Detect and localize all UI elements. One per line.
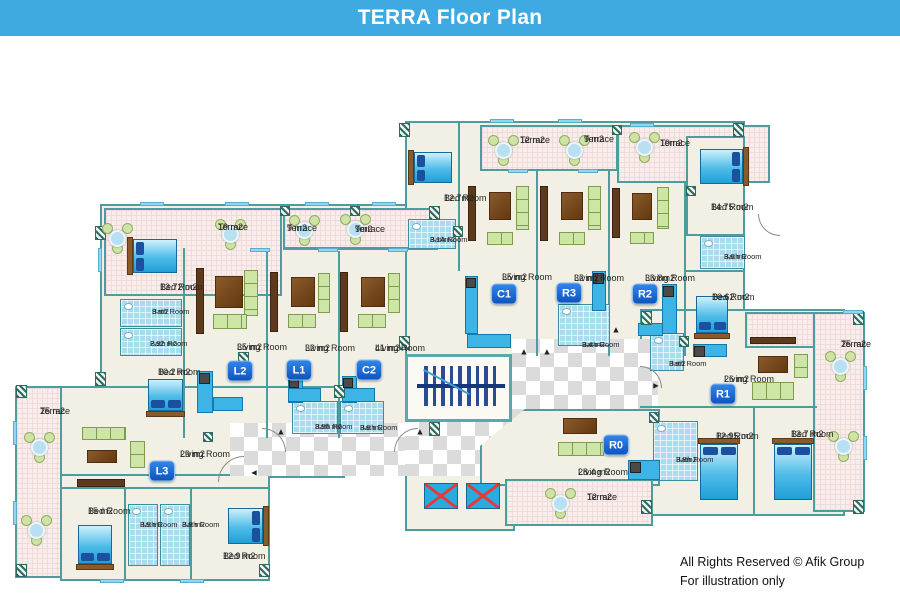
coffee-table-icon: [561, 192, 583, 220]
tv-unit-icon: [270, 272, 278, 332]
window-mark: [13, 501, 17, 525]
room-area: 3.5 m2: [140, 521, 163, 529]
table-top-icon: [495, 142, 512, 159]
entry-arrow-icon: ▲: [416, 428, 425, 437]
pillow-icon: [81, 553, 94, 561]
coffee-table-icon: [563, 418, 597, 434]
pillow-icon: [721, 447, 736, 455]
bed-icon: [78, 525, 112, 564]
room-area: 3.8m2: [676, 456, 697, 464]
loveseat-icon: [130, 441, 145, 468]
sofa-icon: [244, 270, 258, 316]
room-area: 32 m2: [305, 343, 330, 353]
window-mark: [225, 202, 249, 206]
apartment-badge-l1: L1: [286, 360, 312, 381]
room-area: 3.14m2: [430, 236, 455, 244]
entry-arrow-icon: ▲: [543, 348, 552, 357]
room-area: 29 m2: [180, 449, 205, 459]
wall-hatch: [649, 412, 659, 423]
terrace-table-icon: [20, 514, 54, 548]
pillow-icon: [703, 447, 718, 455]
toilet-icon: [654, 337, 663, 344]
kitchen-counter: [213, 397, 243, 411]
apartment-badge-c2: C2: [356, 360, 382, 381]
interior-wall: [124, 489, 126, 581]
loveseat-icon: [559, 232, 585, 245]
pillow-icon: [417, 170, 425, 182]
bathroom-tile-area: [128, 504, 158, 566]
entry-arrow-icon: ▲: [612, 326, 621, 335]
kitchen-counter: [342, 388, 375, 402]
kitchen-counter: [467, 334, 511, 348]
page-title: TERRA Floor Plan: [358, 6, 543, 30]
pillow-icon: [168, 400, 182, 408]
bed-icon: [148, 379, 183, 411]
bed-icon: [414, 152, 452, 183]
room-area: 12.9 m2: [223, 551, 256, 561]
toilet-icon: [657, 425, 666, 432]
floor-plan: ▲▲▲▲▲◄►Terrace19 m2Terrace9 m2Terrace9m2…: [0, 36, 900, 600]
room-area: 12 m2: [587, 492, 612, 502]
room-area: 33.8m2: [645, 273, 675, 283]
window-mark: [180, 579, 204, 583]
stove-icon: [694, 346, 705, 357]
loveseat-icon: [358, 314, 386, 328]
staircase: [405, 354, 512, 422]
toilet-icon: [124, 332, 133, 339]
headboard-icon: [76, 564, 114, 570]
kitchen-counter: [288, 388, 321, 402]
toilet-icon: [344, 405, 353, 412]
window-mark: [508, 169, 528, 173]
entry-arrow-icon: ◄: [250, 469, 259, 478]
pillow-icon: [795, 447, 810, 455]
pillow-icon: [417, 155, 425, 167]
room-area: 25 m2: [40, 406, 65, 416]
coffee-table-icon: [361, 277, 385, 307]
room-area: 19m2: [660, 138, 683, 148]
table-top-icon: [109, 230, 126, 247]
table-top-icon: [835, 438, 852, 455]
pillow-icon: [252, 528, 260, 542]
bed-icon: [228, 508, 263, 544]
coffee-table-icon: [291, 277, 315, 307]
coffee-table-icon: [758, 356, 788, 373]
room-area: 41 m2: [375, 343, 400, 353]
pillow-icon: [252, 511, 260, 525]
room-area: 19 m2: [218, 222, 243, 232]
table-top-icon: [552, 495, 569, 512]
room-area: 3.6 m2: [360, 424, 383, 432]
sofa-icon: [752, 382, 794, 400]
bed-icon: [774, 444, 812, 500]
apartment-badge-l3: L3: [149, 461, 175, 482]
window-mark: [490, 119, 514, 123]
pillow-icon: [732, 152, 740, 166]
loveseat-icon: [630, 232, 654, 244]
window-mark: [372, 202, 396, 206]
table-top-icon: [28, 522, 45, 539]
toilet-icon: [704, 240, 713, 247]
disclaimer-line: For illustration only: [680, 572, 864, 591]
wall-hatch: [679, 336, 689, 347]
window-mark: [843, 310, 863, 314]
wall-hatch: [16, 564, 27, 577]
wall-hatch: [95, 372, 106, 386]
headboard-icon: [694, 333, 730, 339]
pillow-icon: [699, 322, 711, 330]
pillow-icon: [732, 169, 740, 183]
stove-icon: [630, 462, 641, 473]
terrace-table-icon: [23, 431, 57, 465]
room-area: 14.75 m2: [711, 202, 749, 212]
apartment-badge-l2: L2: [227, 361, 253, 382]
room-area: 9 m2: [584, 134, 604, 144]
window-mark: [558, 119, 582, 123]
table-top-icon: [566, 142, 583, 159]
bathroom-tile-area: [160, 504, 190, 566]
terrace-table-icon: [628, 131, 662, 165]
sofa-icon: [558, 442, 604, 456]
copyright-line: All Rights Reserved © Afik Group: [680, 553, 864, 572]
wall-hatch: [641, 500, 652, 514]
elevator-shaft-icon: [466, 483, 500, 509]
tv-unit-icon: [77, 479, 125, 487]
toilet-icon: [124, 303, 133, 310]
loveseat-icon: [487, 232, 513, 245]
pillow-icon: [714, 322, 726, 330]
wall-hatch: [259, 564, 270, 577]
stove-icon: [343, 378, 353, 388]
tv-unit-icon: [612, 188, 620, 238]
window-mark: [305, 202, 329, 206]
wall-hatch: [429, 422, 440, 436]
room-area: 3.4 m2: [582, 341, 605, 349]
bed-icon: [700, 444, 738, 500]
stair-direction-line: [423, 369, 470, 395]
wall-hatch: [641, 311, 652, 325]
window-mark: [250, 248, 270, 252]
room-area: 15 m2: [88, 506, 113, 516]
loveseat-icon: [288, 314, 316, 328]
apartment-badge-r0: R0: [603, 435, 629, 456]
terrace-area: [505, 479, 653, 526]
terrace-table-icon: [487, 134, 521, 168]
toilet-icon: [164, 508, 173, 515]
pillow-icon: [97, 553, 110, 561]
sofa-icon: [516, 186, 529, 230]
window-mark: [318, 248, 338, 252]
wall-hatch: [853, 500, 864, 514]
room-area: 12 m2: [520, 135, 545, 145]
room-area: 3 m2: [669, 360, 686, 368]
entry-arrow-icon: ▲: [520, 348, 529, 357]
loveseat-icon: [794, 354, 808, 378]
room-area: 35 m2: [502, 272, 527, 282]
room-area: 28.4 m2: [578, 467, 611, 477]
terrace-table-icon: [824, 350, 858, 384]
tv-unit-icon: [540, 186, 548, 241]
pillow-icon: [136, 242, 144, 255]
loveseat-icon: [213, 314, 247, 329]
toilet-icon: [412, 223, 421, 230]
pillow-icon: [777, 447, 792, 455]
apartment-badge-r3: R3: [556, 283, 582, 304]
stove-icon: [663, 286, 674, 297]
bed-icon: [133, 239, 177, 273]
stove-icon: [466, 278, 476, 288]
coffee-table-icon: [632, 193, 652, 220]
wall-hatch: [429, 206, 440, 220]
interior-wall: [62, 487, 268, 489]
room-area: 12.95 m2: [716, 431, 754, 441]
room-area: 13.72 m2: [160, 282, 198, 292]
entry-arrow-icon: ▲: [277, 428, 286, 437]
coffee-table-icon: [489, 192, 511, 220]
interior-wall: [190, 489, 192, 581]
toilet-icon: [296, 405, 305, 412]
coffee-table-icon: [215, 276, 243, 308]
bathroom-tile-area: [408, 219, 456, 249]
room-area: 3.6 m2: [724, 253, 747, 261]
interior-wall: [640, 406, 817, 408]
door-swing-arc: [758, 214, 780, 236]
room-area: 3.56 m2: [315, 423, 342, 431]
window-mark: [140, 202, 164, 206]
room-area: 35 m2: [237, 342, 262, 352]
bed-icon: [700, 149, 743, 184]
table-top-icon: [31, 439, 48, 456]
window-mark: [863, 436, 867, 460]
interior-wall: [536, 171, 538, 356]
window-mark: [388, 248, 408, 252]
window-mark: [630, 123, 654, 127]
room-area: 2.92 m2: [150, 340, 177, 348]
apartment-badge-r2: R2: [632, 284, 658, 305]
entry-arrow-icon: ►: [652, 382, 661, 391]
interior-wall: [753, 408, 755, 515]
apartment-badge-r1: R1: [710, 384, 736, 405]
tv-unit-icon: [196, 268, 204, 334]
room-area: 3.8 m2: [182, 521, 205, 529]
tv-unit-icon: [340, 272, 348, 332]
elevator-shaft-icon: [424, 483, 458, 509]
table-top-icon: [636, 139, 653, 156]
coffee-table-icon: [87, 450, 117, 463]
tv-unit-icon: [750, 337, 796, 344]
table-top-icon: [832, 358, 849, 375]
sofa-icon: [388, 273, 400, 313]
wall-hatch: [16, 385, 27, 398]
wall-hatch: [203, 432, 213, 442]
sofa-icon: [588, 186, 601, 230]
room-area: 13.7 m2: [791, 429, 824, 439]
headboard-icon: [263, 506, 269, 546]
sofa-icon: [657, 187, 669, 229]
pillow-icon: [136, 258, 144, 271]
interior-wall: [686, 270, 743, 272]
room-area: 12.7m2: [444, 193, 474, 203]
sofa-icon: [82, 427, 126, 440]
terrace-table-icon: [101, 222, 135, 256]
window-mark: [100, 579, 124, 583]
headboard-icon: [743, 147, 749, 186]
copyright-note: All Rights Reserved © Afik Group For ill…: [680, 553, 864, 592]
toilet-icon: [132, 508, 141, 515]
wall-hatch: [686, 186, 696, 196]
wall-hatch: [399, 123, 410, 137]
headboard-icon: [146, 411, 185, 417]
window-mark: [13, 421, 17, 445]
room-area: 9m2: [355, 224, 373, 234]
room-area: 9 m2: [287, 223, 307, 233]
window-mark: [578, 169, 598, 173]
room-area: 25 m2: [841, 339, 866, 349]
stair-rail: [417, 384, 505, 388]
room-area: 3 m2: [152, 308, 169, 316]
pillow-icon: [151, 400, 165, 408]
window-mark: [863, 366, 867, 390]
sofa-icon: [318, 273, 330, 313]
terrace-table-icon: [544, 487, 578, 521]
toilet-icon: [562, 308, 571, 315]
room-area: 10.62 m2: [712, 292, 750, 302]
headboard-icon: [408, 150, 414, 185]
stove-icon: [199, 373, 210, 384]
title-bar: TERRA Floor Plan: [0, 0, 900, 36]
apartment-badge-c1: C1: [491, 284, 517, 305]
wall-hatch: [733, 123, 744, 137]
room-area: 10.2 m2: [158, 367, 191, 377]
